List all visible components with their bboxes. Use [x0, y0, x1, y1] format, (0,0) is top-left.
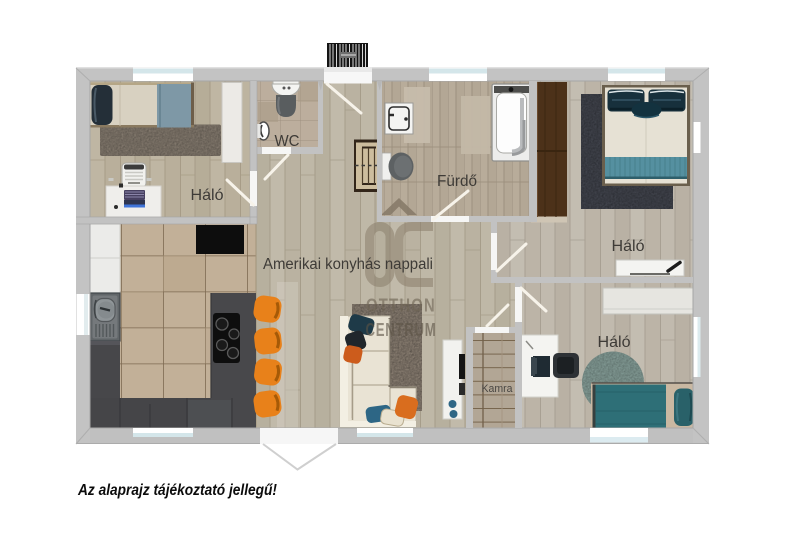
svg-text:Háló: Háló [612, 238, 645, 255]
svg-text:Kamra: Kamra [482, 383, 514, 395]
svg-text:Fürdő: Fürdő [437, 173, 477, 190]
svg-text:WC: WC [275, 133, 300, 150]
svg-text:OTTHON: OTTHON [366, 296, 436, 316]
svg-text:Amerikai konyhás nappali: Amerikai konyhás nappali [263, 256, 433, 273]
svg-text:CENTRUM: CENTRUM [366, 320, 437, 340]
svg-text:Háló: Háló [598, 334, 631, 351]
svg-text:Háló: Háló [191, 187, 224, 204]
svg-text:Az alaprajz tájékoztató jelleg: Az alaprajz tájékoztató jellegű! [77, 482, 277, 499]
